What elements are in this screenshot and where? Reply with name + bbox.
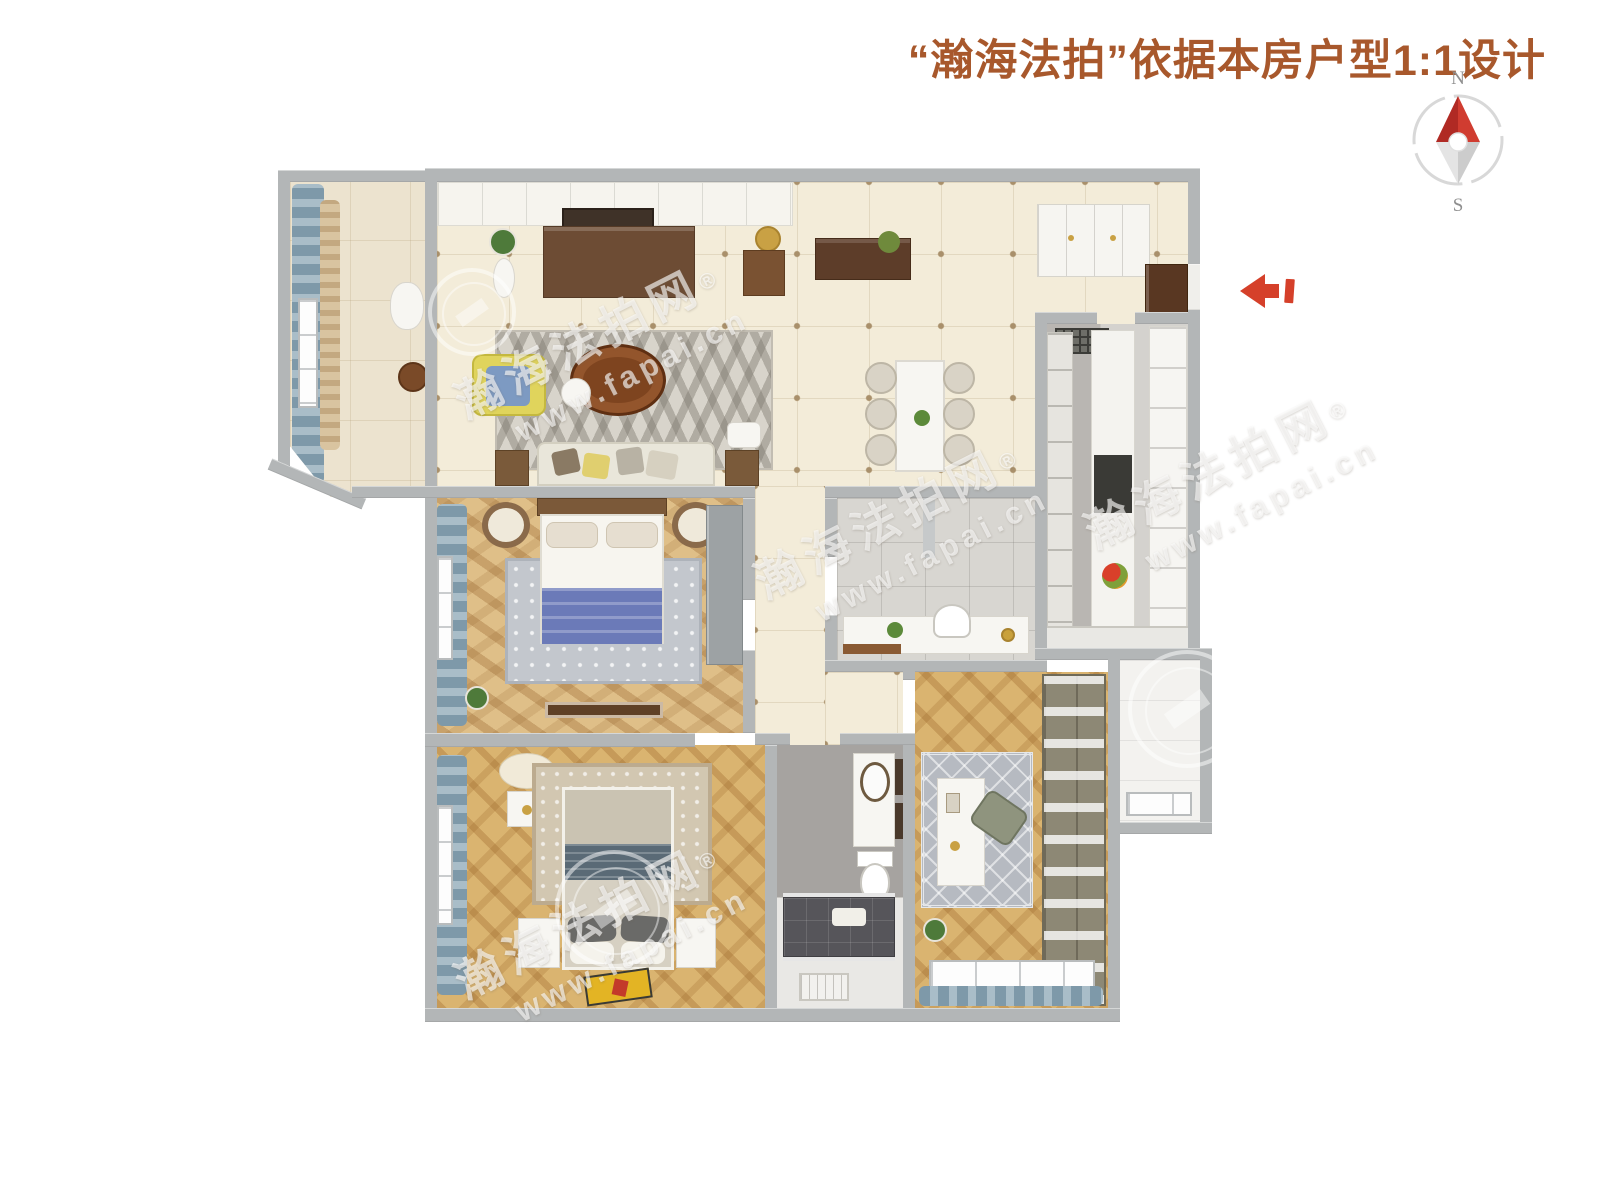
ottoman <box>727 422 761 448</box>
kitchen-appliance <box>1094 455 1132 513</box>
wall <box>278 170 428 182</box>
wall <box>425 733 695 747</box>
wall <box>743 498 755 600</box>
kitchen-cabinet-right <box>1149 326 1187 632</box>
kitchen-cabinet-left <box>1047 332 1073 632</box>
master-blanket <box>565 844 671 880</box>
kitchen <box>1047 324 1188 648</box>
tray-item <box>612 978 629 997</box>
mbath-vanity <box>853 753 895 847</box>
sideboard-plant <box>878 231 900 253</box>
master-nightstand-left <box>518 918 560 968</box>
balcony-armchair <box>390 282 424 330</box>
wall <box>425 486 755 498</box>
master-pillow-white <box>621 942 665 964</box>
utility-balcony <box>1120 660 1200 822</box>
mirror-frame <box>895 759 903 795</box>
wall <box>1035 312 1047 660</box>
plant-pot <box>489 228 517 256</box>
wall <box>743 650 755 733</box>
dining-chair <box>943 434 975 466</box>
dining-chair <box>943 362 975 394</box>
dining-table <box>895 360 945 472</box>
vanity-wood-front <box>843 644 901 654</box>
master-bathroom <box>777 745 903 1008</box>
entry-closet <box>1037 204 1150 277</box>
balcony-window <box>298 298 318 408</box>
shower-area <box>783 897 895 957</box>
sofa <box>537 442 715 486</box>
study-desk <box>937 778 985 886</box>
wall <box>755 733 790 745</box>
mirror-frame <box>895 803 903 839</box>
dining-chair <box>865 434 897 466</box>
bed-bench-frame <box>545 702 663 718</box>
bedroom2-wardrobe <box>706 505 743 665</box>
floorplan-page: { "title": { "text": "“瀚海法拍”依据本房户型1:1设计"… <box>0 0 1600 1200</box>
sofa-side-table-right <box>725 450 759 486</box>
bedroom-second <box>437 498 743 733</box>
plant-stand <box>493 258 515 298</box>
gold-lamp <box>1001 628 1015 642</box>
side-table-small <box>561 378 591 408</box>
study-curtain <box>919 986 1103 1006</box>
floorplan: 瀚海法拍网® www.fapai.cn 瀚海法拍网® www.fapai.cn … <box>0 0 1600 1200</box>
wall <box>425 168 437 1022</box>
wall <box>840 733 915 745</box>
sideboard <box>815 238 911 280</box>
dining-chair <box>943 398 975 430</box>
sofa-pillow-yellow <box>581 452 610 479</box>
bedroom2-bed <box>540 514 664 644</box>
sofa-pillow-gray <box>615 446 644 475</box>
master-bed <box>562 787 674 970</box>
balcony-room <box>290 180 425 497</box>
dining-centerpiece <box>914 410 930 426</box>
bed-pillow <box>546 522 598 548</box>
wall <box>825 498 837 557</box>
registered-mark-icon: ® <box>1324 396 1350 426</box>
bed-pillow <box>606 522 658 548</box>
corridor <box>755 486 825 745</box>
master-pillow-dark <box>567 914 617 943</box>
wall <box>1108 648 1120 1022</box>
yellow-tray <box>583 968 653 1007</box>
wall <box>903 660 915 680</box>
side-cabinet <box>743 250 785 296</box>
sofa-pillow-knit <box>645 450 679 481</box>
bookshelf <box>1042 674 1106 1006</box>
floor-drain <box>799 973 849 1001</box>
wall <box>903 740 915 1022</box>
wall <box>1108 822 1212 834</box>
utility-window <box>1126 792 1192 816</box>
study-room <box>915 672 1108 1008</box>
wall <box>765 745 777 1022</box>
bath-plant <box>887 622 903 638</box>
bedroom2-plant <box>465 686 489 710</box>
bedroom2-window <box>437 556 453 660</box>
closet-handle <box>1068 235 1074 241</box>
balcony-drape <box>320 200 340 450</box>
yellow-armchair <box>472 354 546 416</box>
dining-chair <box>865 398 897 430</box>
wall <box>425 1008 1120 1022</box>
master-nightstand-right <box>676 918 716 968</box>
master-pillow-white <box>570 942 614 964</box>
armchair-cushion <box>486 366 530 406</box>
wall <box>425 168 1200 182</box>
wall <box>1035 648 1212 660</box>
wall <box>278 170 290 466</box>
kitchen-sink-counter <box>1047 626 1188 648</box>
wall <box>1047 312 1097 324</box>
entrance-door <box>1188 264 1200 310</box>
nightstand-drum <box>482 502 530 548</box>
balcony-side-table <box>398 362 428 392</box>
wall <box>825 486 1047 498</box>
bath-partition <box>923 498 935 558</box>
vanity-sink <box>933 604 971 638</box>
desk-item-gold <box>950 841 960 851</box>
wall <box>1135 312 1188 324</box>
bed-blanket-blue <box>542 588 662 644</box>
wall <box>1188 168 1200 660</box>
dining-chair <box>865 362 897 394</box>
kitchen-island-counter <box>1091 330 1135 630</box>
desk-item <box>946 793 960 813</box>
shower-glass <box>783 957 895 961</box>
closet-handle <box>1110 235 1116 241</box>
study-plant <box>923 918 947 942</box>
master-window <box>437 805 453 925</box>
sofa-side-table-left <box>495 450 529 486</box>
sofa-pillow-brown <box>551 448 581 477</box>
gold-flower-decor <box>755 226 781 252</box>
master-pillow-dark <box>620 914 670 943</box>
shower-towel <box>832 908 866 926</box>
tv-cabinet <box>543 226 695 298</box>
lamp-gold-detail <box>522 805 532 815</box>
wall <box>825 660 1047 672</box>
fruit-bowl <box>1102 563 1128 589</box>
mbath-sink <box>860 762 890 802</box>
master-bedroom <box>437 745 765 1008</box>
shower-glass <box>783 893 895 897</box>
wall <box>1200 648 1212 834</box>
guest-bathroom <box>837 498 1035 660</box>
